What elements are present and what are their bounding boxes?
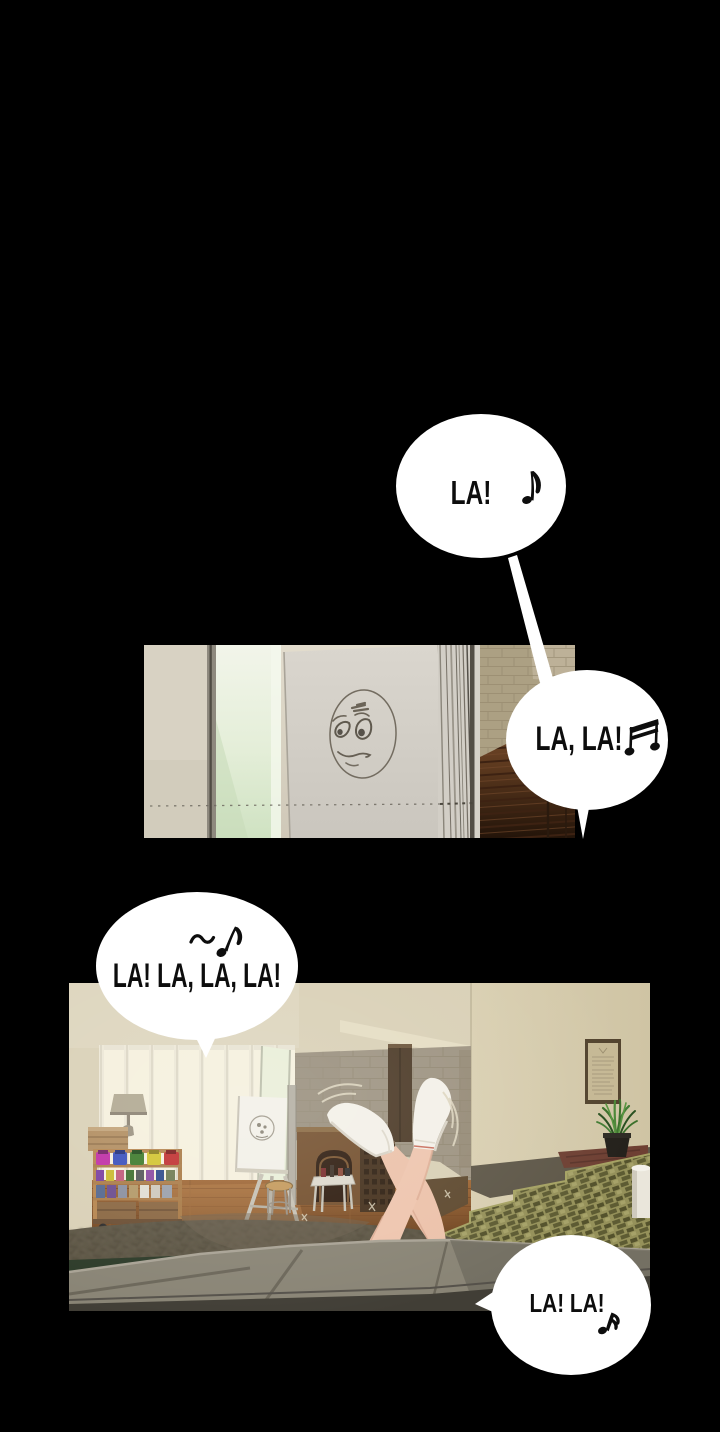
svg-text:LA, LA!: LA, LA! (536, 720, 623, 758)
svg-text:LA! LA, LA, LA!: LA! LA, LA, LA! (113, 958, 281, 996)
svg-text:LA!: LA! (451, 476, 492, 512)
svg-text:LA! LA!: LA! LA! (529, 1289, 604, 1318)
